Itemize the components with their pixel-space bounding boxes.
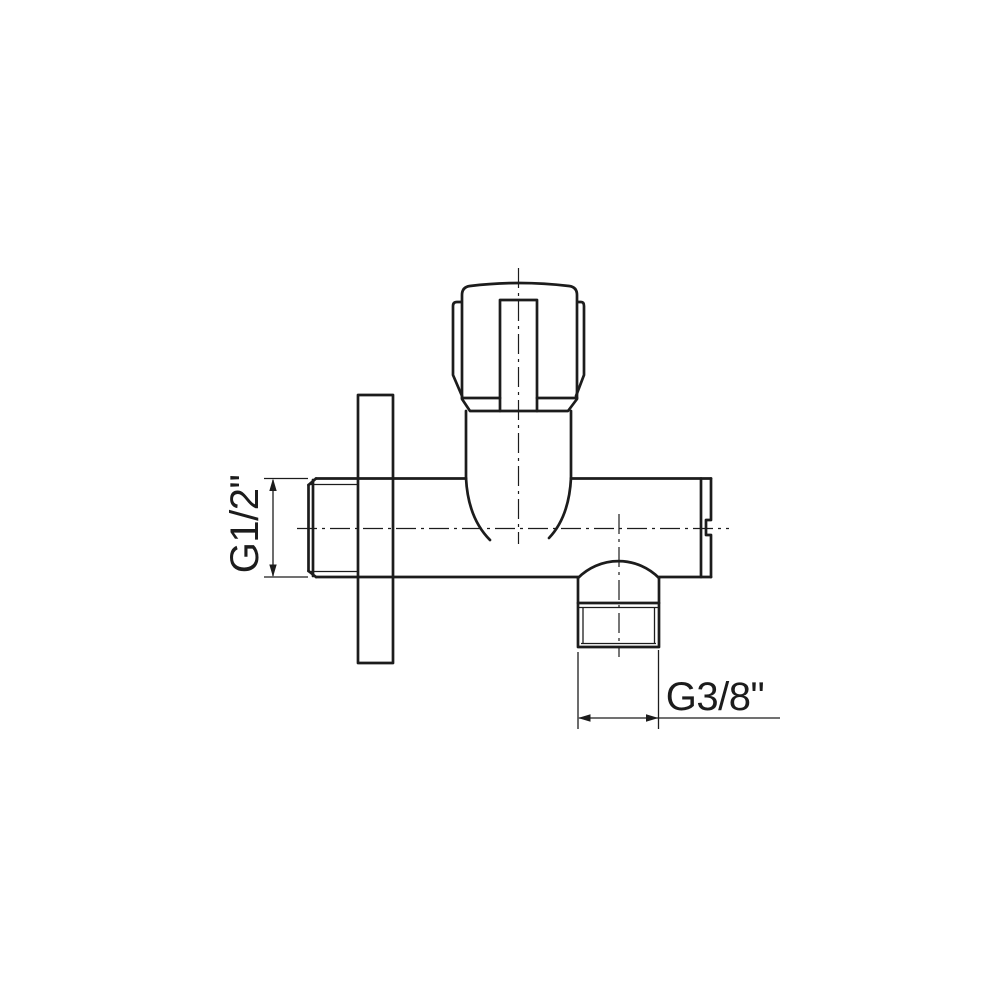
inlet-size-label: G1/2" [223,475,267,573]
outlet-size-label: G3/8" [666,675,764,719]
canvas-background [0,0,1000,1000]
valve-technical-drawing: G1/2" G3/8" [0,0,1000,1000]
drawing-canvas: G1/2" G3/8" [0,0,1000,1000]
